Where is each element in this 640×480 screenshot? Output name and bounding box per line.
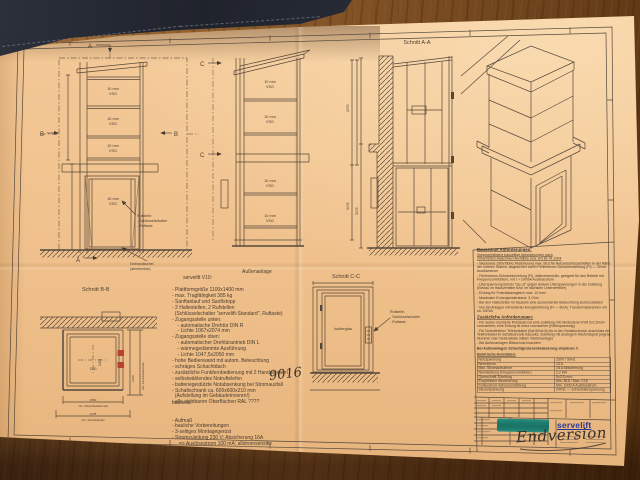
svg-text:VSG: VSG	[109, 122, 117, 126]
nothandkurbel-label: Nothandkurbel (abnehmbar)	[130, 262, 154, 271]
svg-text:VSG: VSG	[109, 149, 117, 153]
dim-label-2075: 2075	[346, 104, 350, 112]
requirements-items: - Steckdose 230V/50Hz Absicherung max. B…	[477, 262, 611, 314]
svg-text:10 mm: 10 mm	[264, 214, 276, 218]
section-marker-a-top: A	[88, 44, 92, 50]
schnitt-cc-title: Schnitt C-C	[332, 274, 360, 280]
red-highlight-mark-2	[117, 362, 124, 368]
spec-subtitle: Außenanlage	[242, 270, 272, 276]
svg-text:VSG: VSG	[266, 85, 274, 89]
svg-text:10 mm: 10 mm	[107, 117, 119, 121]
dim-bb-width: 1100	[90, 367, 97, 371]
svg-text:10 mm: 10 mm	[107, 197, 119, 201]
side-elevation-view: C C 10 mmVSG 10 mmVSG 10 mmVSG 10 mmVSG …	[200, 50, 359, 246]
spec-title: servelift V10:	[183, 275, 212, 281]
dim-bb-outer2-label: min. Schachtgrube	[81, 418, 105, 422]
additional-heading: Zusätzliche Anforderungen:	[477, 315, 611, 319]
svg-text:VSG: VSG	[266, 219, 274, 223]
dim-label-aa: 3005	[355, 207, 359, 215]
dim-bb-side-height: 1400	[131, 375, 135, 382]
dim-bb-height: 1400	[98, 359, 102, 366]
schnitt-aa-view: Schnitt A-A 3005	[355, 40, 460, 256]
svg-text:- Schlüsselschalter: - Schlüsselschalter	[137, 219, 168, 223]
rufstelle-label-front: Rufstelle: - Schlüsselschalter - Ruftast…	[137, 214, 168, 228]
schnitt-aa-title: Schnitt A-A	[403, 40, 431, 46]
dim-bb-outer2: 1478	[90, 412, 97, 416]
svg-text:Rufstelle:: Rufstelle:	[137, 214, 152, 218]
red-highlight-mark-1	[117, 350, 124, 356]
dim-label-3005: 3005	[346, 202, 350, 210]
section-marker-a-bottom: A	[76, 258, 80, 264]
svg-text:VSG: VSG	[266, 120, 274, 124]
svg-text:10 mm: 10 mm	[107, 87, 119, 91]
rufstelle-label-cc: Rufstelle: - Schlüsselschalter - Ruftast…	[390, 310, 421, 324]
svg-text:- Ruftaste: - Ruftaste	[137, 224, 153, 228]
svg-text:Nothandkurbel: Nothandkurbel	[130, 262, 154, 266]
schnitt-bb-view: Schnitt B-B 1100 1400 1560 min. Schachta…	[40, 287, 157, 422]
photo-of-technical-drawing: A A B B 10 mmVSG 10 mmVSG 10 mmVSG 10 mm…	[0, 0, 640, 480]
isolierglas-label: Isolierglas	[334, 326, 352, 331]
svg-text:(abnehmbar): (abnehmbar)	[130, 267, 151, 271]
svg-text:10 mm: 10 mm	[264, 179, 276, 183]
requirements-block: Bauseitige Anforderungen: Vorgeschrieben…	[477, 248, 611, 398]
schnitt-bb-title: Schnitt B-B	[82, 287, 110, 293]
svg-text:VSG: VSG	[109, 202, 117, 206]
svg-text:VSG: VSG	[266, 184, 274, 188]
isometric-3d-view	[461, 36, 585, 248]
front-elevation-view: A A B B 10 mmVSG 10 mmVSG 10 mmVSG 10 mm…	[40, 44, 199, 271]
electrical-table-row: Steuerspannung24Vdc — Schutzkleinspannun…	[477, 388, 611, 392]
svg-text:- Ruftaste: - Ruftaste	[390, 320, 406, 324]
bauseits-title: bauseits:	[172, 401, 322, 407]
electrical-table: Netzspannung230V / 50Hz Nennstrom13 A Ma…	[477, 358, 611, 393]
bauseits-lines: - Aufmaß- bauliche Vorbereitungen- 3-sei…	[172, 419, 322, 449]
drawing-sheet: A A B B 10 mmVSG 10 mmVSG 10 mmVSG 10 mm…	[0, 0, 640, 480]
section-marker-c-bottom: C	[200, 153, 205, 159]
dim-bb-outer1-label: min. Schachtaußenmaß	[78, 404, 108, 408]
svg-text:VSG: VSG	[109, 92, 117, 96]
section-marker-b-left: B	[40, 132, 44, 138]
svg-text:Rufstelle:: Rufstelle:	[390, 310, 405, 314]
svg-text:- Schlüsselschalter: - Schlüsselschalter	[390, 315, 421, 319]
requirements-intro: Vorgeschriebene bauseitige Anforderungen…	[477, 253, 611, 261]
requirements-heading: Bauseitige Anforderungen:	[477, 248, 611, 252]
drainage-bold-note: Bei Außenanlagen Schachtgrubenentwässeru…	[477, 347, 611, 351]
dim-bb-outer1: 1560	[90, 398, 97, 402]
svg-text:10 mm: 10 mm	[107, 144, 119, 148]
section-marker-b-right: B	[174, 132, 178, 138]
additional-items: - Für außen montierte Rufsäulen ist eine…	[477, 321, 611, 346]
dim-bb-side-label: min. Schachtaußenmaß	[141, 362, 145, 390]
svg-text:10 mm: 10 mm	[264, 80, 276, 84]
svg-text:10 mm: 10 mm	[264, 115, 276, 119]
glass-panel-labels-side: 10 mmVSG 10 mmVSG 10 mmVSG 10 mmVSG	[264, 80, 276, 223]
section-marker-c-top: C	[200, 62, 205, 68]
electrical-heading: Elektrische Kenndaten:	[477, 353, 611, 357]
glass-panel-labels-front: 10 mmVSG 10 mmVSG 10 mmVSG 10 mmVSG	[107, 87, 119, 206]
